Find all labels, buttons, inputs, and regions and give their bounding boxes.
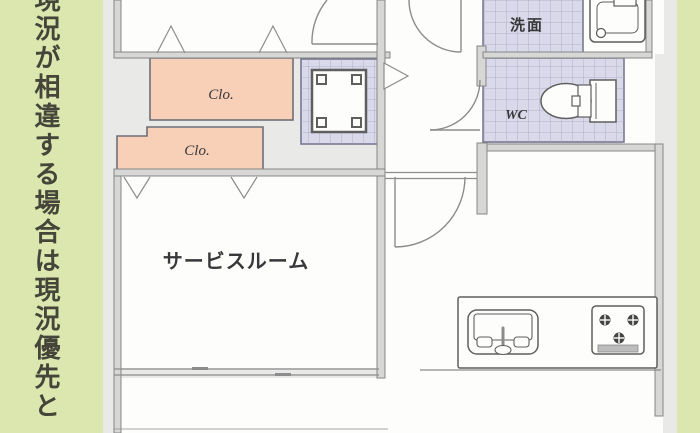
balcony xyxy=(120,378,663,433)
washroom-label: 洗面 xyxy=(510,16,544,34)
wc-label: WC xyxy=(505,108,527,123)
gas-stove-icon xyxy=(592,306,644,354)
duct-strip xyxy=(622,54,655,146)
washbasin-icon xyxy=(590,0,645,42)
floor-plan-drawing: Clo. Clo. xyxy=(0,0,700,433)
closet-lower-label: Clo. xyxy=(184,143,209,159)
closet-upper-label: Clo. xyxy=(208,87,233,103)
closet-upper: Clo. xyxy=(150,58,293,120)
service-room-label: サービスルーム xyxy=(163,250,309,273)
kitchen-sink-icon xyxy=(468,310,538,355)
hallway xyxy=(385,0,483,175)
toilet-icon xyxy=(541,80,616,122)
pipe-space-unit xyxy=(301,59,378,144)
floor-plan-page: 現況が相違する場合は現況優先と xyxy=(0,0,700,433)
kitchen-counter xyxy=(458,297,657,368)
